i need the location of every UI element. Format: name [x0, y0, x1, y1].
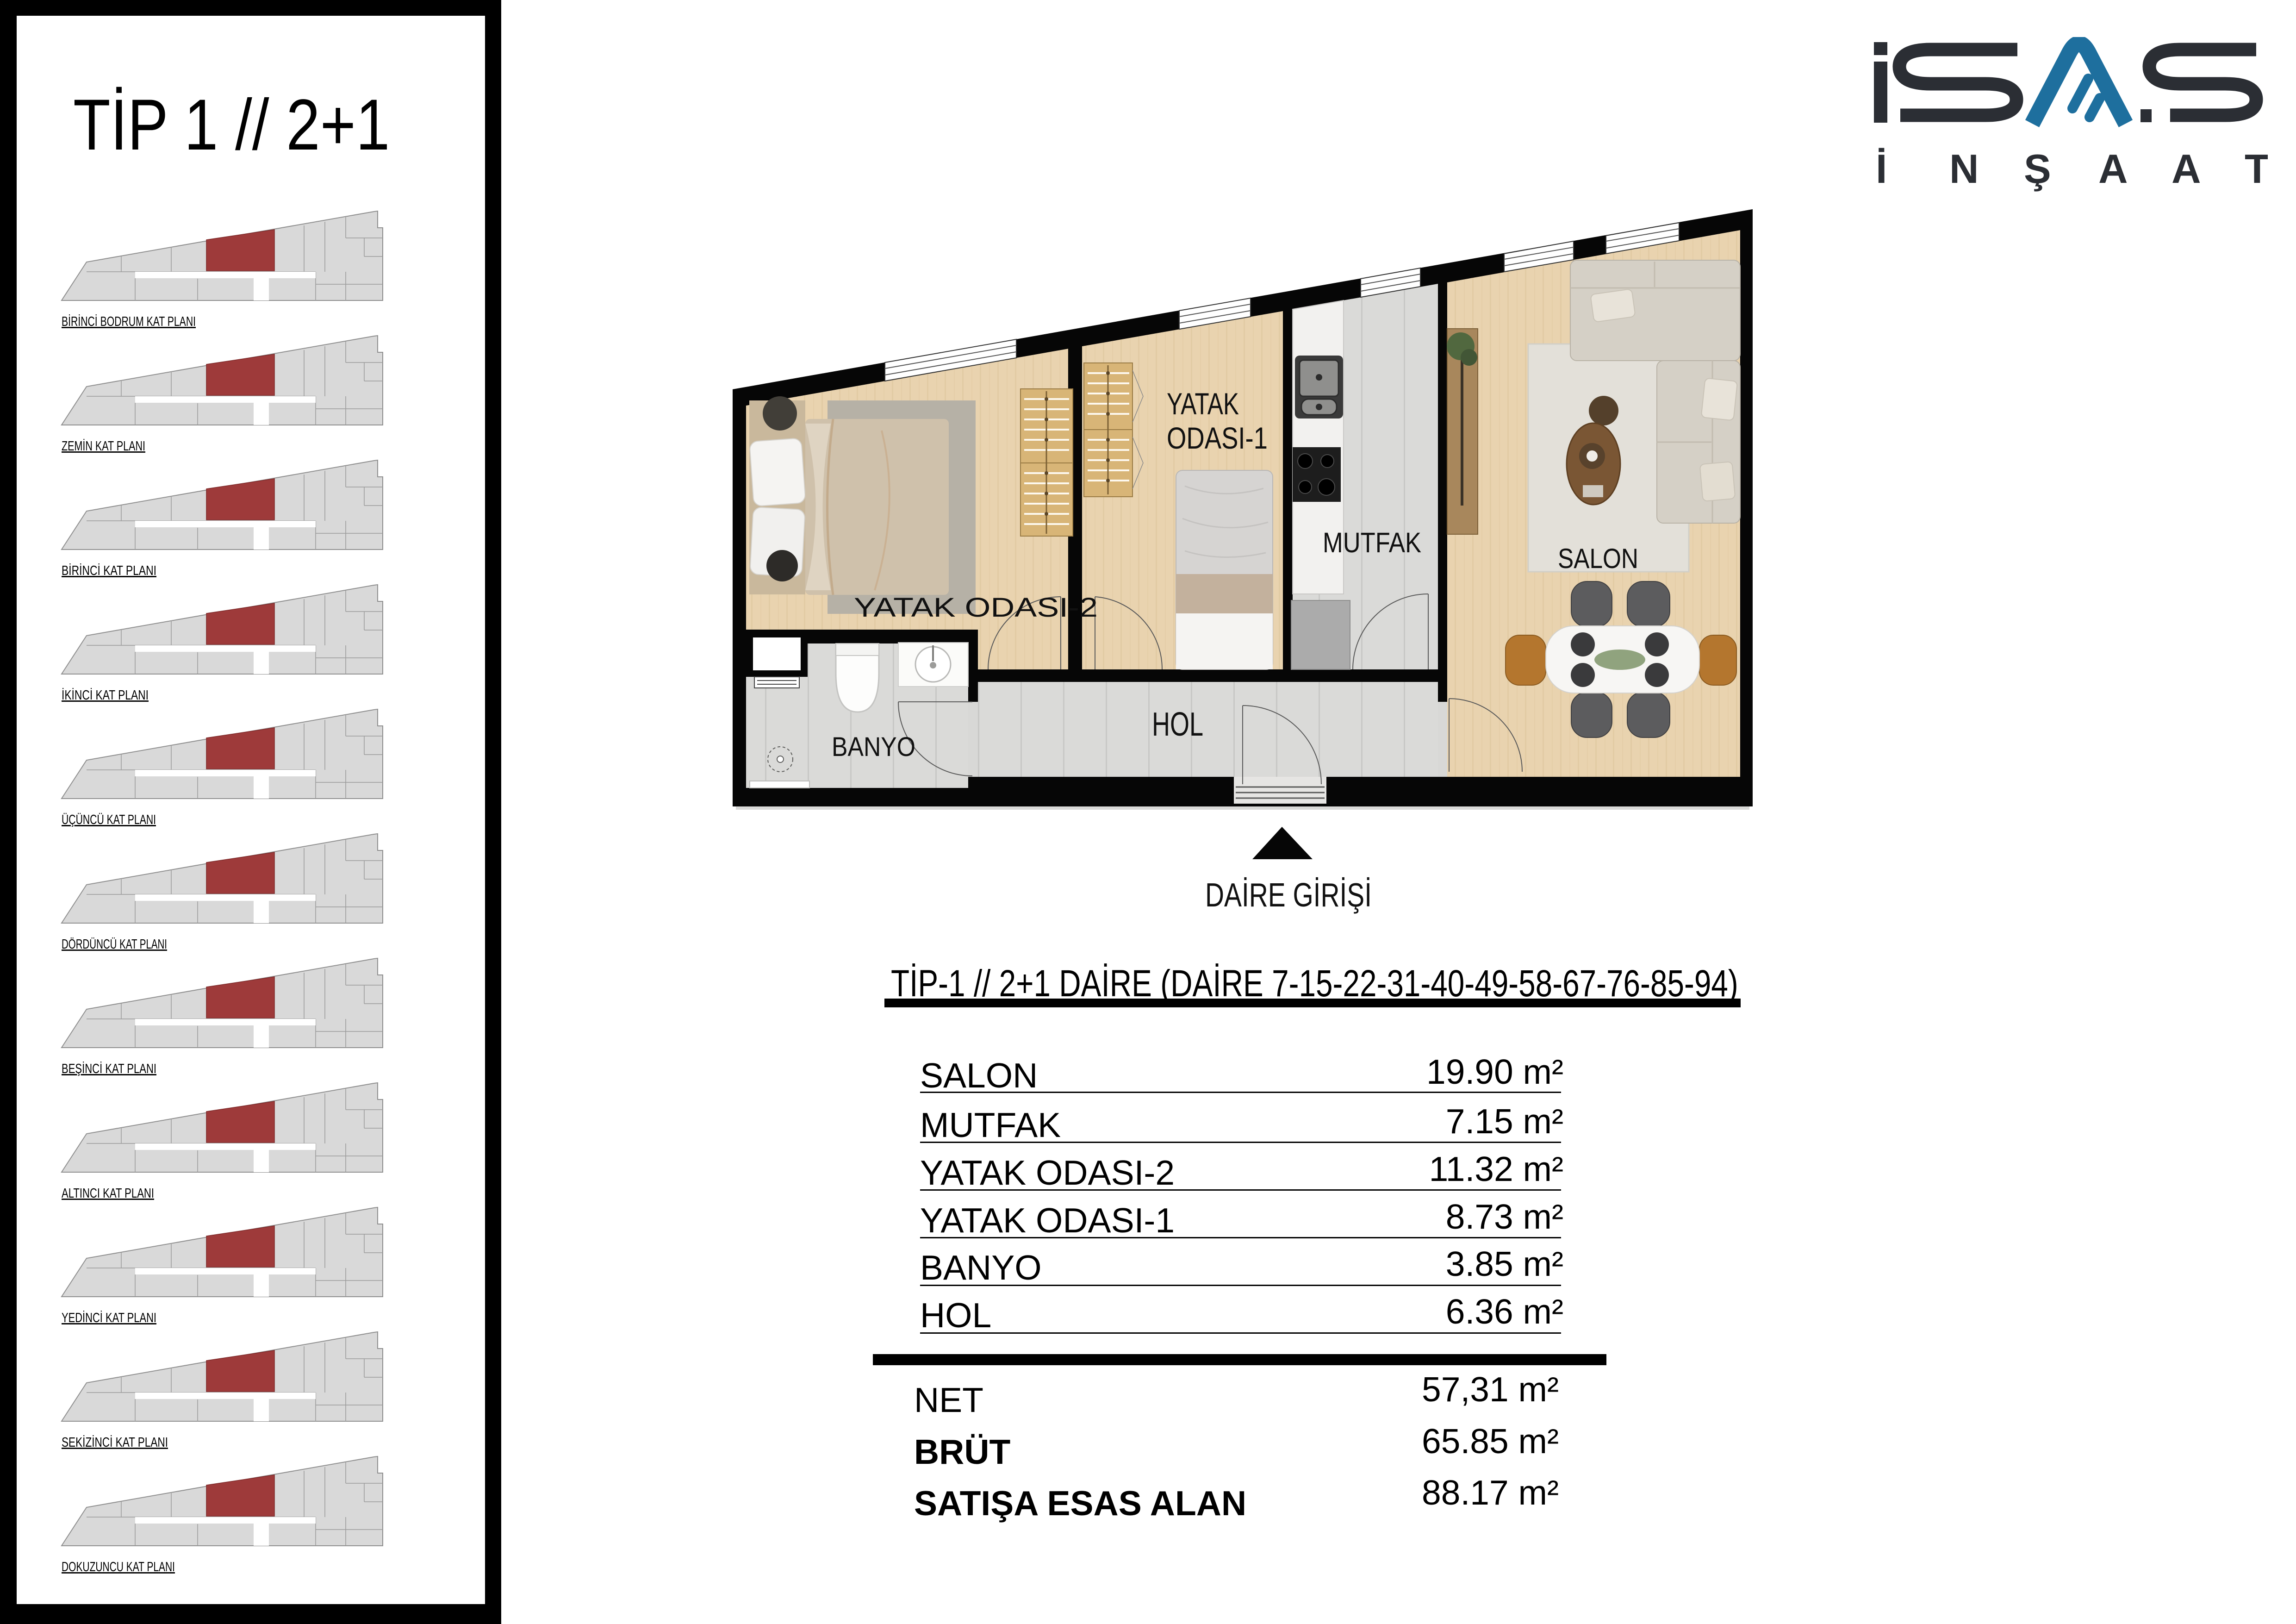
svg-text:YATAK ODASI-2: YATAK ODASI-2 [854, 593, 1098, 623]
svg-text:N: N [1949, 146, 1979, 192]
svg-text:ALTINCI KAT PLANI: ALTINCI KAT PLANI [62, 1186, 154, 1201]
svg-text:SEKİZİNCİ KAT PLANI: SEKİZİNCİ KAT PLANI [62, 1435, 168, 1450]
svg-text:YEDİNCİ KAT PLANI: YEDİNCİ KAT PLANI [62, 1310, 156, 1325]
svg-text:BEŞİNCİ KAT PLANI: BEŞİNCİ KAT PLANI [62, 1061, 156, 1076]
svg-text:İKİNCİ KAT PLANI: İKİNCİ KAT PLANI [62, 687, 149, 703]
svg-text:BİRİNCİ KAT PLANI: BİRİNCİ KAT PLANI [62, 563, 156, 578]
svg-text:SALON: SALON [1558, 543, 1638, 574]
svg-text:İ: İ [1876, 146, 1887, 192]
svg-text:BİRİNCİ BODRUM KAT PLANI: BİRİNCİ BODRUM KAT PLANI [62, 314, 196, 329]
svg-text:MUTFAK: MUTFAK [1323, 527, 1421, 558]
svg-text:HOL: HOL [1152, 706, 1203, 743]
svg-text:A: A [2098, 146, 2128, 192]
svg-text:A: A [2172, 146, 2201, 192]
svg-text:DAİRE GİRİŞİ: DAİRE GİRİŞİ [1205, 877, 1372, 914]
svg-text:ZEMİN KAT PLANI: ZEMİN KAT PLANI [62, 438, 145, 454]
svg-text:BANYO: BANYO [832, 732, 915, 762]
svg-text:T: T [2245, 146, 2268, 192]
svg-text:Ş: Ş [2024, 146, 2051, 192]
svg-text:YATAK: YATAK [1167, 387, 1239, 421]
svg-text:ÜÇÜNCÜ KAT PLANI: ÜÇÜNCÜ KAT PLANI [62, 812, 156, 827]
svg-text:DOKUZUNCU KAT PLANI: DOKUZUNCU KAT PLANI [62, 1560, 175, 1574]
svg-text:ODASI-1: ODASI-1 [1167, 421, 1268, 455]
svg-text:DÖRDÜNCÜ KAT PLANI: DÖRDÜNCÜ KAT PLANI [62, 937, 167, 952]
